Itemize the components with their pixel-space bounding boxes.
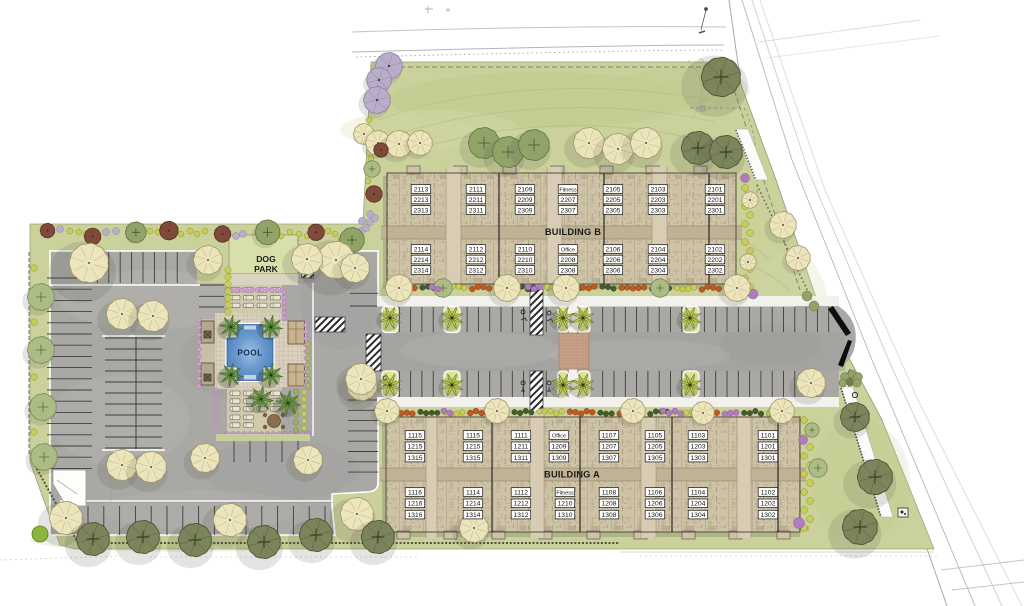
svg-text:2307: 2307 (561, 207, 576, 214)
svg-text:2211: 2211 (469, 197, 484, 204)
svg-text:2309: 2309 (518, 207, 533, 214)
svg-text:2201: 2201 (708, 197, 723, 204)
svg-text:1205: 1205 (648, 444, 663, 451)
svg-text:1106: 1106 (648, 489, 663, 496)
svg-text:2102: 2102 (708, 246, 723, 253)
svg-text:1304: 1304 (691, 512, 706, 519)
svg-text:1103: 1103 (691, 432, 706, 439)
svg-text:1108: 1108 (602, 489, 617, 496)
svg-text:1301: 1301 (761, 455, 776, 462)
svg-text:1309: 1309 (552, 455, 567, 462)
svg-text:1102: 1102 (761, 489, 776, 496)
svg-text:1315: 1315 (466, 455, 481, 462)
svg-text:Office: Office (552, 433, 566, 439)
svg-text:1202: 1202 (761, 501, 776, 508)
svg-text:2312: 2312 (469, 267, 484, 274)
svg-text:2308: 2308 (561, 267, 576, 274)
svg-text:1207: 1207 (602, 444, 617, 451)
svg-text:1201: 1201 (761, 444, 776, 451)
svg-text:2112: 2112 (469, 246, 484, 253)
svg-text:1211: 1211 (514, 444, 529, 451)
svg-text:BUILDING B: BUILDING B (545, 227, 601, 237)
svg-text:2106: 2106 (606, 246, 621, 253)
svg-text:2311: 2311 (469, 207, 484, 214)
svg-text:1111: 1111 (514, 432, 528, 439)
svg-text:2301: 2301 (708, 207, 723, 214)
svg-text:2209: 2209 (518, 197, 533, 204)
svg-text:1208: 1208 (602, 501, 617, 508)
svg-text:2111: 2111 (469, 186, 483, 193)
svg-text:DOG: DOG (256, 254, 276, 264)
svg-text:2310: 2310 (518, 267, 533, 274)
svg-text:1215: 1215 (408, 444, 423, 451)
svg-text:1112: 1112 (514, 489, 528, 496)
svg-text:2212: 2212 (469, 257, 484, 264)
svg-text:1315: 1315 (408, 455, 423, 462)
svg-text:1206: 1206 (648, 501, 663, 508)
svg-text:2210: 2210 (518, 257, 533, 264)
svg-text:2214: 2214 (414, 257, 429, 264)
svg-text:1214: 1214 (466, 501, 481, 508)
svg-text:1203: 1203 (691, 444, 706, 451)
svg-text:2101: 2101 (708, 186, 723, 193)
svg-text:1310: 1310 (558, 512, 573, 519)
svg-text:1311: 1311 (514, 455, 529, 462)
svg-text:2303: 2303 (651, 207, 666, 214)
svg-text:1101: 1101 (761, 432, 776, 439)
svg-text:2104: 2104 (651, 246, 666, 253)
svg-text:1114: 1114 (466, 489, 480, 496)
svg-text:BUILDING A: BUILDING A (544, 470, 600, 480)
svg-text:1306: 1306 (648, 512, 663, 519)
svg-text:2205: 2205 (606, 197, 621, 204)
svg-text:POOL: POOL (237, 349, 262, 358)
svg-text:1107: 1107 (602, 432, 617, 439)
svg-text:Fitness: Fitness (556, 490, 574, 496)
svg-text:2203: 2203 (651, 197, 666, 204)
svg-text:2114: 2114 (414, 246, 429, 253)
svg-text:PARK: PARK (254, 264, 279, 274)
svg-text:2207: 2207 (561, 197, 576, 204)
svg-text:2103: 2103 (651, 186, 666, 193)
svg-text:1316: 1316 (408, 512, 423, 519)
svg-text:2302: 2302 (708, 267, 723, 274)
svg-text:2206: 2206 (606, 257, 621, 264)
svg-text:1116: 1116 (408, 489, 422, 496)
svg-text:1212: 1212 (514, 501, 529, 508)
svg-text:1303: 1303 (691, 455, 706, 462)
svg-text:2113: 2113 (414, 186, 429, 193)
svg-text:1216: 1216 (408, 501, 423, 508)
svg-text:1305: 1305 (648, 455, 663, 462)
svg-text:2204: 2204 (651, 257, 666, 264)
svg-text:1314: 1314 (466, 512, 481, 519)
svg-text:1209: 1209 (552, 444, 567, 451)
svg-text:1115: 1115 (466, 432, 480, 439)
svg-text:1210: 1210 (558, 501, 573, 508)
svg-text:2110: 2110 (518, 246, 533, 253)
svg-text:1105: 1105 (648, 432, 663, 439)
svg-text:1302: 1302 (761, 512, 776, 519)
svg-text:Office: Office (561, 247, 575, 253)
svg-text:1312: 1312 (514, 512, 529, 519)
svg-text:1104: 1104 (691, 489, 706, 496)
svg-text:2202: 2202 (708, 257, 723, 264)
svg-text:1308: 1308 (602, 512, 617, 519)
svg-text:Fitness: Fitness (559, 187, 577, 193)
svg-text:2109: 2109 (518, 186, 533, 193)
svg-text:2105: 2105 (606, 186, 621, 193)
svg-text:2305: 2305 (606, 207, 621, 214)
svg-text:2208: 2208 (561, 257, 576, 264)
svg-text:2314: 2314 (414, 267, 429, 274)
svg-text:1215: 1215 (466, 444, 481, 451)
svg-text:2304: 2304 (651, 267, 666, 274)
svg-text:1115: 1115 (408, 432, 422, 439)
svg-text:2313: 2313 (414, 207, 429, 214)
svg-text:1307: 1307 (602, 455, 617, 462)
svg-text:1204: 1204 (691, 501, 706, 508)
svg-text:2306: 2306 (606, 267, 621, 274)
svg-text:2213: 2213 (414, 197, 429, 204)
